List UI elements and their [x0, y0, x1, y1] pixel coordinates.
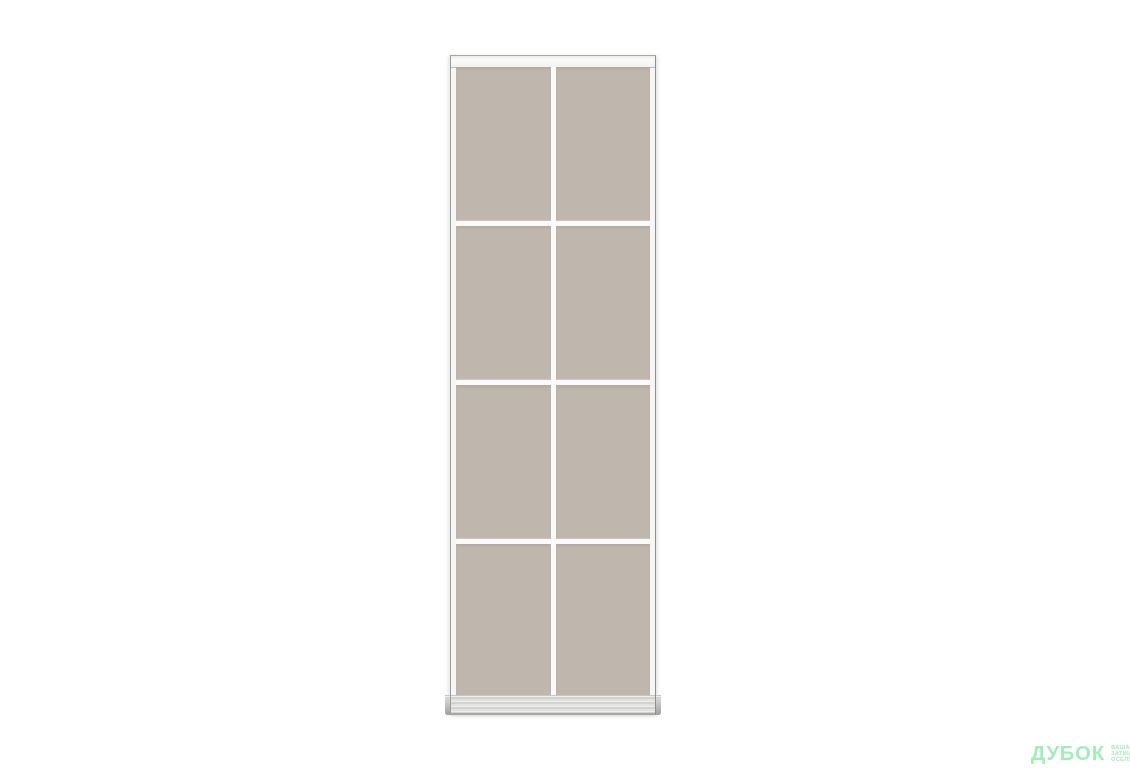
- glass-pane: [556, 226, 651, 380]
- glass-pane: [456, 385, 551, 539]
- brand-tagline: ваша затишна оселя: [1111, 745, 1130, 763]
- brand-logo-text: ДУБОК: [1031, 745, 1105, 763]
- glass-pane: [556, 67, 651, 221]
- brand-watermark: ДУБОК ваша затишна оселя: [1031, 745, 1130, 763]
- door-bottom-track-rail: [445, 695, 661, 715]
- glass-pane: [556, 385, 651, 539]
- glass-pane: [556, 544, 651, 698]
- door-glass-grid: [456, 67, 650, 698]
- glass-pane: [456, 226, 551, 380]
- brand-tagline-line: оселя: [1111, 757, 1130, 763]
- glass-pane: [456, 544, 551, 698]
- glass-pane: [456, 67, 551, 221]
- wardrobe-sliding-door: [450, 55, 656, 715]
- product-photo-canvas: ДУБОК ваша затишна оселя: [0, 0, 1130, 773]
